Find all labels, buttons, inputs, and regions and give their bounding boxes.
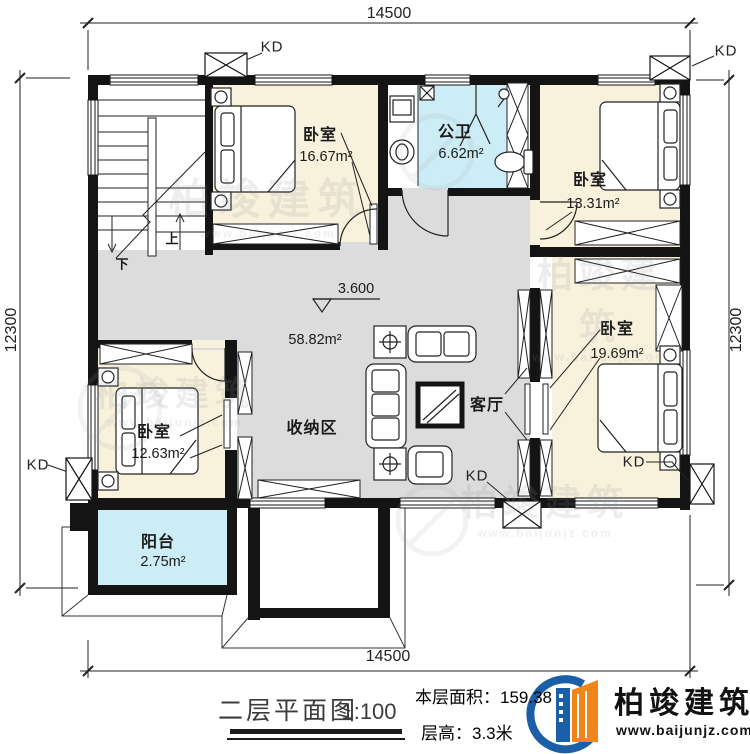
dim-right: 12300	[728, 308, 746, 353]
stair-down-arrow	[108, 216, 116, 252]
brand-name: 柏竣建筑	[614, 678, 750, 722]
room-bedroom4-area: 12.63m²	[131, 446, 184, 462]
window-top-stair	[110, 75, 198, 85]
sheet-title: 二层平面图	[218, 691, 358, 727]
room-bedroom3-area: 19.69m²	[590, 346, 643, 362]
stair-down-label: 下	[115, 254, 128, 273]
end-table-bottom	[374, 448, 406, 480]
kd-label-top-right: KD	[715, 43, 738, 60]
room-bedroom2-area: 13.31m²	[566, 196, 619, 212]
kd-label-left: KD	[27, 457, 50, 474]
kd-label-right: KD	[623, 454, 646, 471]
stair-break-line	[116, 152, 205, 258]
room-living-name: 客厅	[470, 391, 504, 415]
washer	[390, 96, 414, 122]
armchair	[408, 446, 452, 484]
window-right-bedroom2	[680, 95, 690, 185]
room-balcony-name: 阳台	[141, 528, 175, 552]
stair-up-label: 上	[165, 229, 178, 248]
room-bedroom1-name: 卧室	[303, 121, 337, 145]
window-bottom-bedroom3	[575, 498, 658, 508]
sheet-scale: 1:100	[341, 699, 396, 725]
dim-left: 12300	[3, 308, 21, 353]
room-balcony-area: 2.75m²	[140, 554, 185, 570]
room-storage-name: 收纳区	[286, 414, 337, 438]
kd-label-bottom: KD	[466, 468, 489, 485]
stairs	[98, 100, 205, 258]
end-table-top	[374, 326, 406, 358]
room-bedroom3-name: 卧室	[600, 315, 634, 339]
window-top-bedroom2	[598, 75, 655, 85]
brand-website: www.baijunjz.com	[616, 722, 750, 738]
kd-label-top-left: KD	[261, 39, 284, 56]
room-bath-area: 6.62m²	[438, 146, 483, 162]
bed-top-right	[600, 84, 680, 208]
bed-top-left	[211, 88, 295, 210]
floor-height-line: 层高：3.3米	[421, 719, 513, 744]
window-bottom-storage	[250, 498, 325, 508]
dim-bottom: 14500	[366, 648, 411, 666]
window-left-bedroom4	[88, 385, 98, 470]
elevation-value: 3.600	[338, 281, 374, 297]
room-bedroom2-name: 卧室	[573, 166, 607, 190]
window-left-stair	[88, 100, 98, 175]
title-underline	[227, 729, 405, 740]
floorplan-sheet: 14500 14500 12300 12300 KD KD KD KD KD 卧…	[0, 0, 750, 754]
bed-right	[598, 346, 682, 470]
tv-cabinet	[418, 384, 462, 426]
room-bedroom4-name: 卧室	[137, 418, 171, 442]
sofa-three-seat	[366, 364, 406, 448]
floor-drain	[420, 86, 434, 100]
dim-top: 14500	[367, 5, 412, 23]
floor-area-line: 本层面积：159.38	[415, 683, 552, 708]
window-top-bedroom1	[255, 75, 332, 85]
loveseat	[408, 326, 476, 362]
hall-area-value: 58.82m²	[288, 332, 341, 348]
room-bath-name: 公卫	[438, 118, 472, 142]
room-bedroom1-area: 16.67m²	[299, 149, 352, 165]
window-top-bath	[425, 75, 470, 85]
toilet	[495, 150, 533, 174]
floorplan-drawing	[0, 0, 750, 754]
